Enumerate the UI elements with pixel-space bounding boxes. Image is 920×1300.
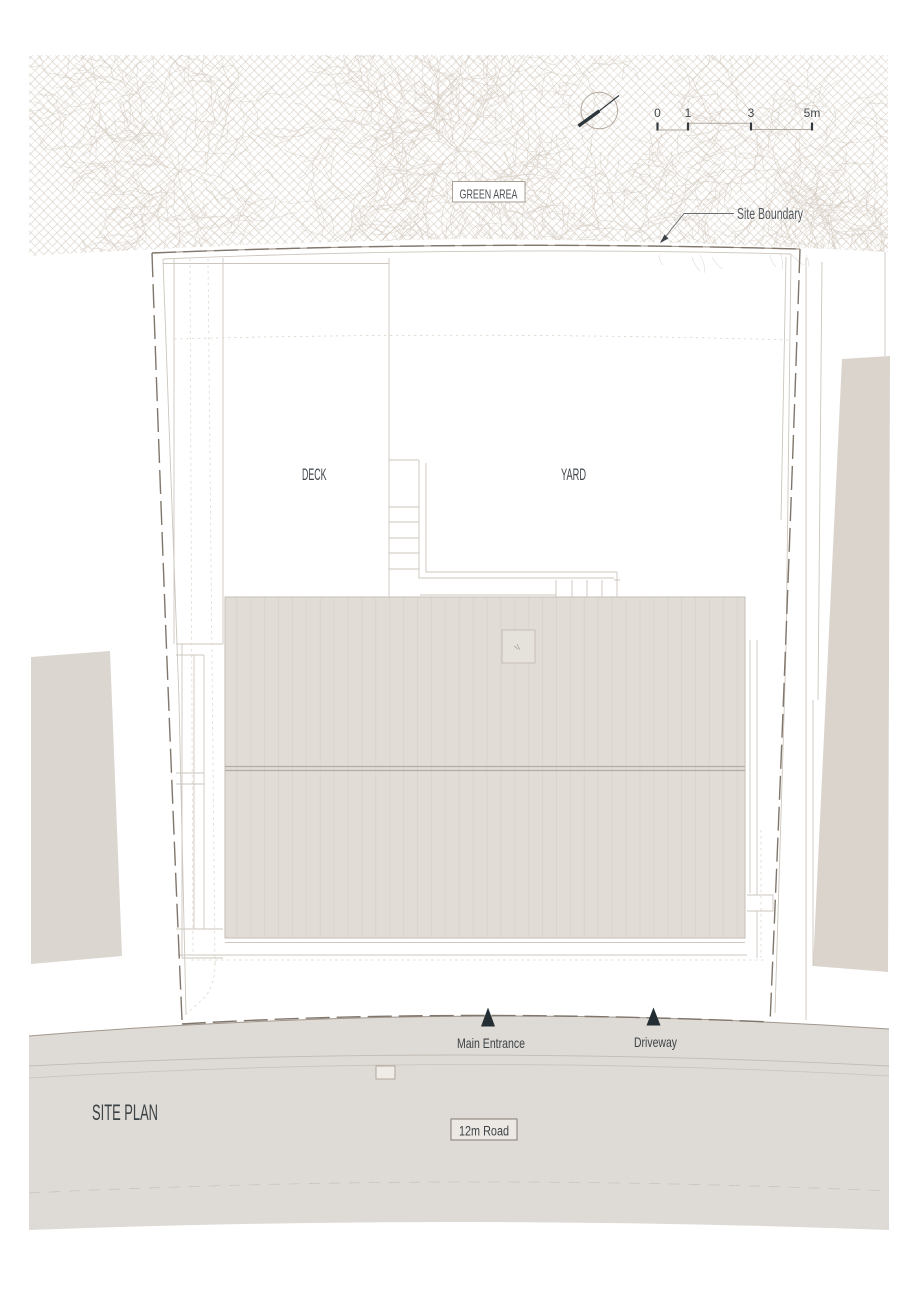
svg-text:Site Boundary: Site Boundary: [737, 206, 803, 223]
svg-text:DECK: DECK: [302, 465, 327, 484]
svg-text:SITE PLAN: SITE PLAN: [92, 1100, 158, 1125]
svg-text:GREEN AREA: GREEN AREA: [460, 187, 518, 202]
svg-text:3: 3: [748, 106, 755, 120]
svg-text:Main Entrance: Main Entrance: [457, 1035, 525, 1051]
svg-text:5m: 5m: [804, 106, 821, 120]
svg-text:Driveway: Driveway: [634, 1034, 677, 1050]
svg-text:1: 1: [685, 106, 692, 120]
svg-text:YARD: YARD: [561, 465, 586, 484]
svg-text:12m Road: 12m Road: [459, 1124, 509, 1139]
svg-text:0: 0: [654, 106, 661, 120]
